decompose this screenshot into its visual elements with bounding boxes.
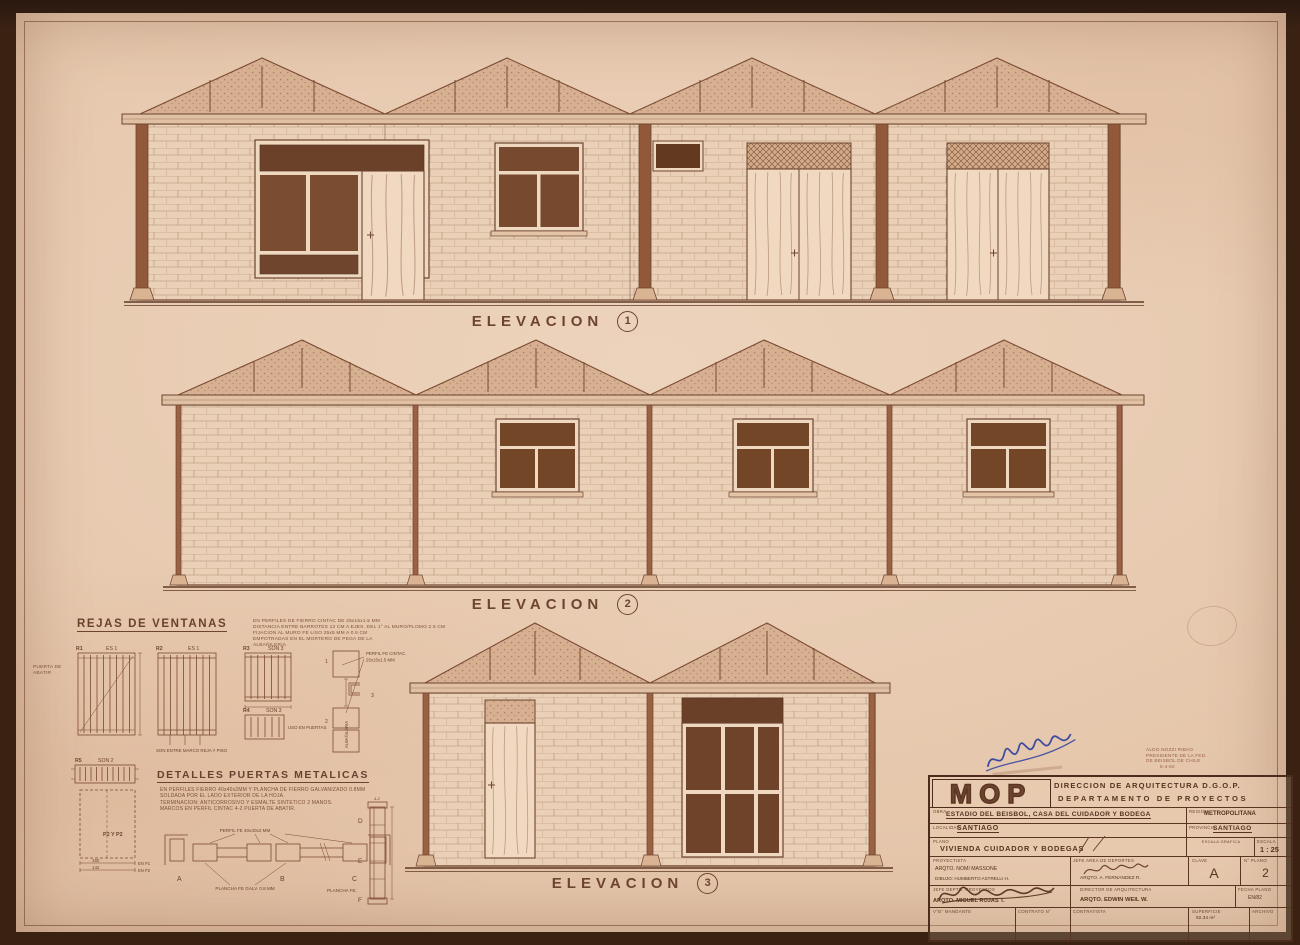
section-letter-a: A [177,876,182,883]
bay3-high-window [653,141,703,171]
archivo-label: ARCHIVO [1252,909,1274,914]
title-block: MOP DIRECCION DE ARQUITECTURA D.G.O.P. D… [928,775,1293,942]
elevation-1-drawing [118,50,1150,312]
profile-n3: 3 [371,693,374,699]
elevation-2-number: 2 [617,594,638,615]
handwritten-check [1073,833,1115,857]
dim-142-note: EN P2 [138,868,151,873]
federation-stamp: ALDO NOZZI RIBAO PRESIDENTE DE LA FED. D… [1146,747,1207,769]
localidad-value: SANTIAGO [957,825,999,833]
contrato-label: CONTRATO N° [1018,909,1051,914]
region-value: METROPOLITANA [1204,811,1256,817]
escala-value: 1 : 25 [1260,845,1279,854]
proyectista-label: PROYECTISTA [933,858,966,863]
section-letter-e: E [358,858,363,865]
superficie-label: SUPERFICIE [1192,909,1221,914]
section-letter-b: B [280,876,285,883]
mop-logo-box: MOP [932,779,1051,808]
bay1-window-door-unit [255,140,429,300]
window-3 [963,419,1054,497]
obra-value: ESTADIO DEL BEISBOL, CASA DEL CUIDADOR Y… [946,811,1151,819]
obra-label: OBRA [933,809,946,814]
r4-note: USO EN PUERTAS [288,725,326,730]
r5-qty: SON 2 [98,758,114,764]
org-line-1: DIRECCION DE ARQUITECTURA D.G.O.P. [1054,781,1241,790]
section-letter-f: F [358,897,362,904]
r3-qty: SON 3 [268,646,284,652]
r2-qty: ES 1 [188,646,199,652]
profile-n1: 1 [325,659,328,665]
r1-qty: ES 1 [106,646,117,652]
r5-id: R5 [75,758,82,764]
eave-fascia [122,114,1146,124]
elevation-2-title: ELEVACION [472,596,603,613]
gable-roofs [178,340,1122,395]
elevation-1-label: ELEVACION 1 [455,310,655,332]
plancha-label: PLANCHA FE GALV. 0.8 MM [215,886,274,891]
grille-r3 [245,653,291,709]
elevation-2-drawing [158,330,1152,608]
dim-160-note: EN P1 [138,861,151,866]
p2-door-sketch [80,790,135,872]
elevation-3-title: ELEVACION [552,875,683,892]
escala-grafica-label: ESCALA GRAFICA [1190,839,1252,844]
grille-r2 [158,653,216,745]
grille-r1 [78,653,142,735]
org-line-2: DEPARTAMENTO DE PROYECTOS [1058,794,1248,803]
contratista-label: CONTRATISTA [1073,909,1106,914]
profile-label-1: PERFIL FE CINTAC [366,651,405,656]
grille-r5 [71,765,139,783]
escala-label: ESCALA [1257,839,1276,844]
grille-r4 [245,715,284,739]
profile-n2: 2 [325,719,328,725]
stamp-line: DE BEISBOL DE CHILE [1146,758,1207,764]
stamp-date: 6-4-82 [1146,764,1207,770]
r3-id: R3 [243,646,250,652]
elevation-3-drawing [398,613,902,893]
section-letter-c: C [352,876,357,883]
gable-roofs [140,58,1120,114]
eave-fascia [162,395,1144,405]
dim-142: 142 [92,865,100,870]
blueprint-scan: ELEVACION 1 [0,0,1300,945]
gable-roofs [425,623,875,683]
elevation-1-number: 1 [617,311,638,332]
fecha-label: FECHA PLANO [1238,887,1271,892]
r1-id: R1 [76,646,83,652]
r4-id: R4 [243,708,250,714]
localidad-label: LOCALIDAD [933,825,960,830]
window-2 [729,419,817,497]
plancha-fe-label: PLANCHA FE. [327,888,357,893]
albanileria-label: ALBAÑILERIA [344,721,349,748]
nplano-label: N° PLANO [1244,858,1267,863]
ground-line [124,302,1144,306]
window-1 [492,419,583,497]
perfil-label: PERFIL FE 40x40x2 MM [220,828,271,833]
ground-line [405,868,893,872]
proyectista-value: ARQTO. NOMI MASSONE [935,866,997,872]
r2-note: SON ENTRE MARCO REJA Y PISO [156,748,228,753]
fernandez-value: ARQTO. A. FERNANDEZ R. [1080,876,1141,881]
rojas-value: ARQTO. MIGUEL ROJAS T. [933,898,1005,904]
bay3-double-door [747,143,851,300]
director-label: DIRECTOR DE ARQUITECTURA [1080,887,1152,892]
clave-label: CLAVE [1192,858,1207,863]
eave-fascia [410,683,890,693]
mop-logo: MOP [950,779,1033,809]
elevation-3-number: 3 [697,873,718,894]
r4-qty: SON 3 [266,708,282,714]
profile-label-2: 25x15x1.5 MM [366,658,395,663]
provincia-label: PROVINCIA [1189,825,1215,830]
elevation-2-label: ELEVACION 2 [455,593,655,615]
nplano-value: 2 [1240,866,1291,880]
superficie-value: 92.34 m² [1196,916,1215,921]
large-window [682,698,783,857]
dim-160: 160 [92,858,100,863]
door [485,700,535,858]
weil-value: ARQTO. EDWIN WEIL W. [1080,897,1148,903]
details-drawing: R1 ES 1 R2 ES 1 SON ENTRE MARCO REJA Y P… [30,613,460,923]
bay2-window [491,143,587,236]
bay4-double-door [947,143,1049,300]
elevation-1-title: ELEVACION [472,313,603,330]
p2-label: P2 Y P2 [103,832,123,838]
provincia-value: SANTIAGO [1213,825,1252,833]
r2-id: R2 [156,646,163,652]
jefe-area-signature [1080,859,1152,877]
section-letter-d: D [358,818,363,825]
plano-value: VIVIENDA CUIDADOR Y BODEGAS [940,844,1084,853]
ground-line [163,587,1136,591]
fecha-value: EN/82 [1248,895,1262,901]
clave-value: A [1188,865,1240,881]
mark-4-2: 4-2 [374,796,381,801]
vb-mandante-label: V°B° MANDANTE [933,909,971,914]
plano-label: PLANO [933,839,949,844]
elevation-3-label: ELEVACION 3 [535,872,735,894]
